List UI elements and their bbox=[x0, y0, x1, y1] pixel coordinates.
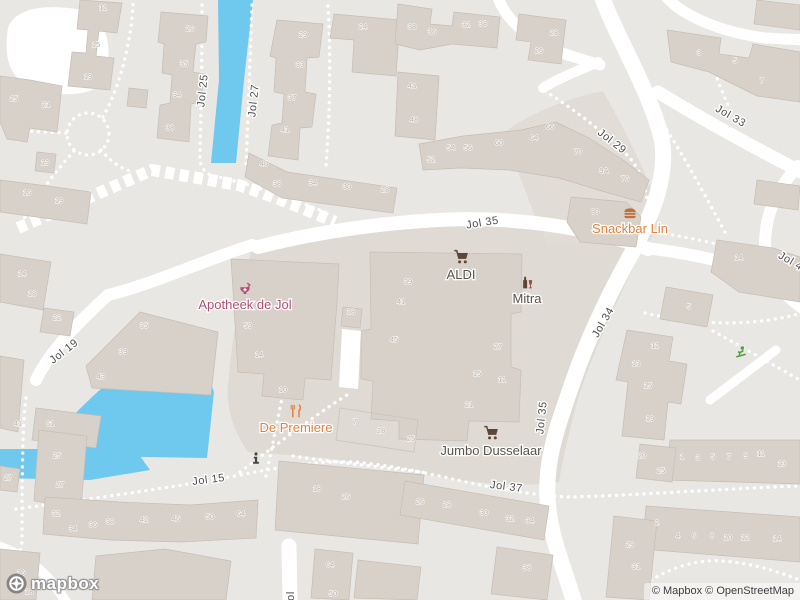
house-number: 45 bbox=[390, 335, 398, 344]
map-canvas[interactable]: 1115192521132635343829333741403834302824… bbox=[0, 0, 800, 600]
house-number: 28 bbox=[381, 185, 389, 194]
house-number: 22 bbox=[53, 313, 61, 322]
house-number: 21 bbox=[42, 100, 50, 109]
house-number: 32 bbox=[462, 20, 470, 29]
house-number: 10 bbox=[279, 385, 287, 394]
house-number: 14 bbox=[773, 534, 781, 543]
house-number: 43 bbox=[97, 372, 105, 381]
poi-label[interactable]: De Premiere bbox=[260, 420, 333, 435]
house-number: 8 bbox=[710, 531, 714, 540]
house-number: 36 bbox=[89, 520, 97, 529]
house-number: 33 bbox=[296, 60, 304, 69]
house-number: 29 bbox=[299, 30, 307, 39]
house-number: 52 bbox=[427, 155, 435, 164]
house-number: 50 bbox=[206, 512, 214, 521]
house-number: 38 bbox=[106, 517, 114, 526]
house-number: 64 bbox=[237, 509, 245, 518]
house-number: 41 bbox=[14, 419, 22, 428]
map-container: 1115192521132635343829333741403834302824… bbox=[0, 0, 800, 600]
house-number: 35 bbox=[140, 321, 148, 330]
house-number: 61 bbox=[46, 419, 54, 428]
house-number: 38 bbox=[166, 123, 174, 132]
house-number: 11 bbox=[651, 341, 659, 350]
house-number: 9A bbox=[599, 166, 608, 175]
house-number: 18 bbox=[28, 289, 36, 298]
house-number: 25 bbox=[407, 434, 415, 443]
mapbox-logo-icon bbox=[6, 573, 27, 594]
house-number: 64 bbox=[326, 560, 334, 569]
house-number: 15 bbox=[644, 381, 652, 390]
house-number: 66 bbox=[546, 122, 554, 131]
mapbox-logo[interactable]: mapbox bbox=[6, 573, 99, 594]
house-number: 64 bbox=[530, 133, 538, 142]
house-number: 41 bbox=[397, 297, 405, 306]
house-number: 7 bbox=[727, 452, 731, 461]
house-number: 27 bbox=[4, 473, 12, 482]
house-number: 35 bbox=[180, 59, 188, 68]
poi-label[interactable]: Snackbar Lin bbox=[592, 221, 668, 236]
house-number: 4a bbox=[408, 81, 417, 90]
house-number: 14 bbox=[255, 350, 263, 359]
house-number: 11 bbox=[498, 375, 506, 384]
map-attribution[interactable]: © Mapbox © OpenStreetMap bbox=[644, 583, 800, 600]
house-number: 11 bbox=[757, 449, 765, 458]
house-number: 32 bbox=[52, 509, 60, 518]
house-number: 16 bbox=[23, 188, 31, 197]
house-number: 34 bbox=[309, 178, 317, 187]
house-number: 20 bbox=[638, 451, 646, 460]
house-number: 60 bbox=[495, 138, 503, 147]
house-number: 27 bbox=[494, 342, 502, 351]
house-number: 10 bbox=[724, 533, 732, 542]
house-number: 27 bbox=[56, 480, 64, 489]
house-number: 14 bbox=[735, 253, 743, 262]
house-number: 46 bbox=[172, 514, 180, 523]
house-number: 5 bbox=[687, 302, 691, 311]
house-number: 32 bbox=[506, 514, 514, 523]
house-number: 26 bbox=[186, 24, 194, 33]
house-number: 13 bbox=[632, 359, 640, 368]
house-number: 6 bbox=[692, 531, 696, 540]
poi-label[interactable]: Mitra bbox=[513, 291, 543, 306]
passage bbox=[339, 329, 361, 389]
house-number: 39 bbox=[404, 277, 412, 286]
house-number: 5 bbox=[733, 56, 737, 65]
house-number: 70 bbox=[574, 147, 582, 156]
house-number: 25 bbox=[53, 451, 61, 460]
house-number: 38 bbox=[479, 19, 487, 28]
house-number: 19 bbox=[84, 72, 92, 81]
house-number: 28 bbox=[443, 500, 451, 509]
house-number: 40 bbox=[260, 159, 268, 168]
house-number: 19 bbox=[646, 414, 654, 423]
house-number: 26 bbox=[535, 46, 543, 55]
poi-label[interactable]: Apotheek de Jol bbox=[198, 297, 291, 312]
poi-label[interactable]: ALDI bbox=[447, 267, 476, 282]
house-number: 7 bbox=[760, 76, 764, 85]
house-number: 80 bbox=[591, 207, 599, 216]
house-number: 9 bbox=[744, 451, 748, 460]
house-number: 28 bbox=[550, 28, 558, 37]
house-number: 31 bbox=[632, 562, 640, 571]
house-number: 38 bbox=[273, 179, 281, 188]
house-number: 34 bbox=[526, 516, 534, 525]
house-number: 18 bbox=[347, 307, 355, 316]
house-number: 24 bbox=[359, 22, 367, 31]
house-number: 56 bbox=[464, 143, 472, 152]
house-number: 25 bbox=[10, 94, 18, 103]
house-number: 2 bbox=[655, 518, 659, 527]
house-number: 42 bbox=[140, 515, 148, 524]
house-number: 54 bbox=[447, 143, 455, 152]
house-number: 14 bbox=[18, 269, 26, 278]
house-number: 38 bbox=[408, 22, 416, 31]
house-number: 12 bbox=[741, 533, 749, 542]
house-number: 76 bbox=[621, 174, 629, 183]
house-number: 37 bbox=[288, 93, 296, 102]
house-number: 1 bbox=[680, 452, 684, 461]
house-number: 39 bbox=[119, 347, 127, 356]
house-number: 34 bbox=[173, 90, 181, 99]
house-number: 15 bbox=[473, 369, 481, 378]
house-number: 30 bbox=[480, 508, 488, 517]
house-number: 13 bbox=[41, 158, 49, 167]
house-number: 30 bbox=[343, 182, 351, 191]
house-number: 25 bbox=[657, 466, 665, 475]
burger-icon[interactable] bbox=[624, 208, 635, 218]
house-number: 26 bbox=[342, 492, 350, 501]
house-number: 19 bbox=[55, 196, 63, 205]
street-label: Jol bbox=[285, 591, 297, 600]
house-number: 7 bbox=[353, 417, 357, 426]
mapbox-logo-text: mapbox bbox=[31, 574, 99, 594]
house-number: 5 bbox=[711, 452, 715, 461]
house-number: 29 bbox=[626, 540, 634, 549]
house-number: 26 bbox=[416, 497, 424, 506]
poi-label[interactable]: Jumbo Dusselaar bbox=[440, 443, 542, 458]
house-number: 48 bbox=[410, 115, 418, 124]
house-number: 3 bbox=[696, 453, 700, 462]
house-number: 28 bbox=[377, 426, 385, 435]
house-number: 4 bbox=[676, 531, 680, 540]
house-number: 41 bbox=[281, 125, 289, 134]
house-number: 3 bbox=[697, 48, 701, 57]
house-number: 50 bbox=[329, 589, 337, 598]
house-number: 59 bbox=[244, 321, 252, 330]
house-number: 38 bbox=[523, 563, 531, 572]
house-number: 36 bbox=[428, 27, 436, 36]
house-number: 21 bbox=[465, 400, 473, 409]
house-number: 11 bbox=[99, 3, 107, 12]
house-number: 34 bbox=[69, 524, 77, 533]
house-number: 13 bbox=[778, 459, 786, 468]
house-number: 15 bbox=[92, 40, 100, 49]
house-number: 18 bbox=[313, 484, 321, 493]
